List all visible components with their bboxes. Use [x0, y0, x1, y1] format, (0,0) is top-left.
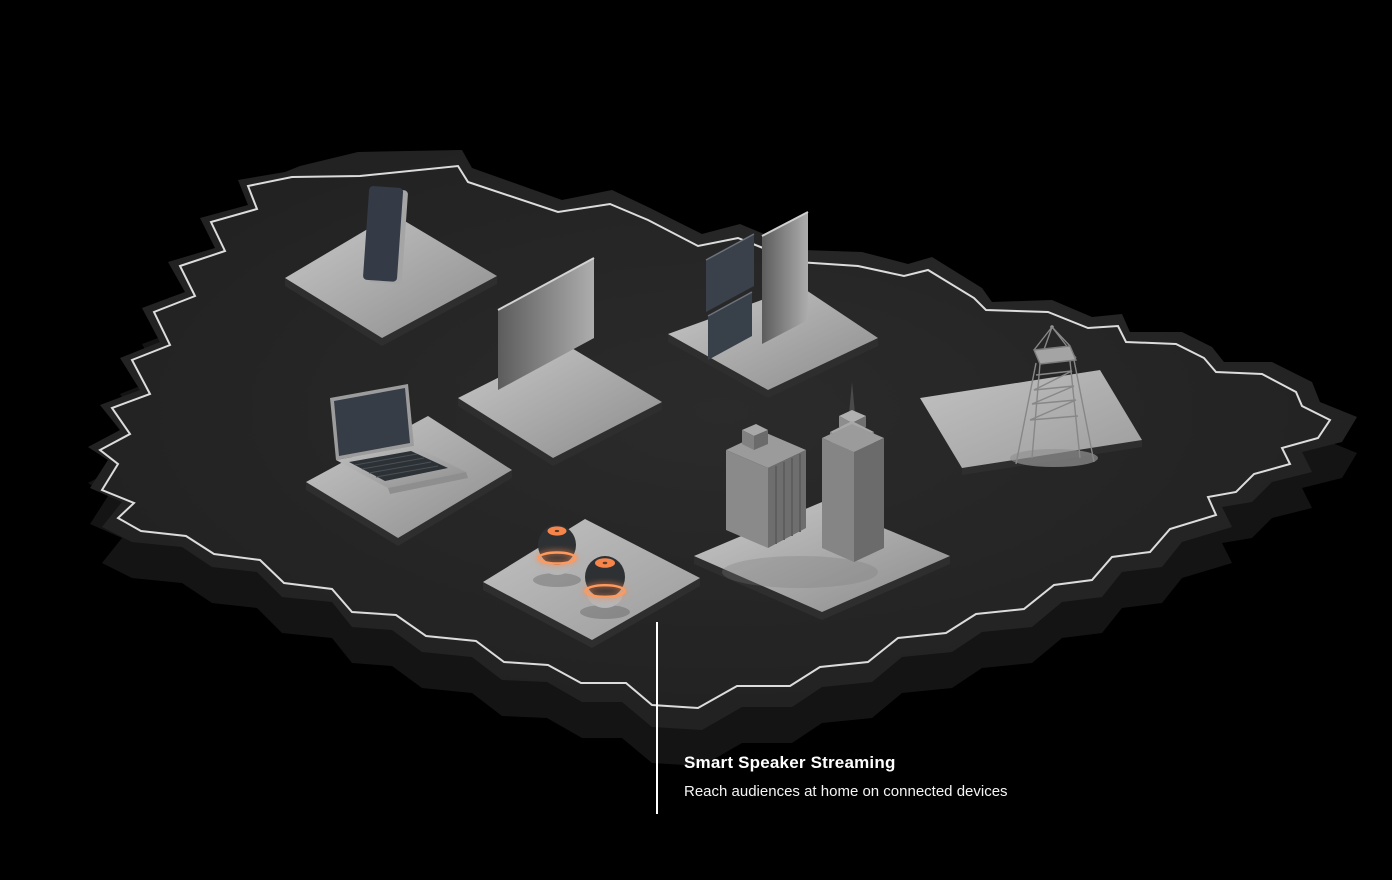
smart-speaker-left — [538, 525, 576, 575]
smartphone — [363, 186, 409, 284]
smart-speaker-right — [585, 556, 625, 608]
map-illustration — [0, 0, 1392, 880]
map-top-face — [88, 150, 1357, 730]
hero-illustration: Smart Speaker Streaming Reach audiences … — [0, 0, 1392, 880]
